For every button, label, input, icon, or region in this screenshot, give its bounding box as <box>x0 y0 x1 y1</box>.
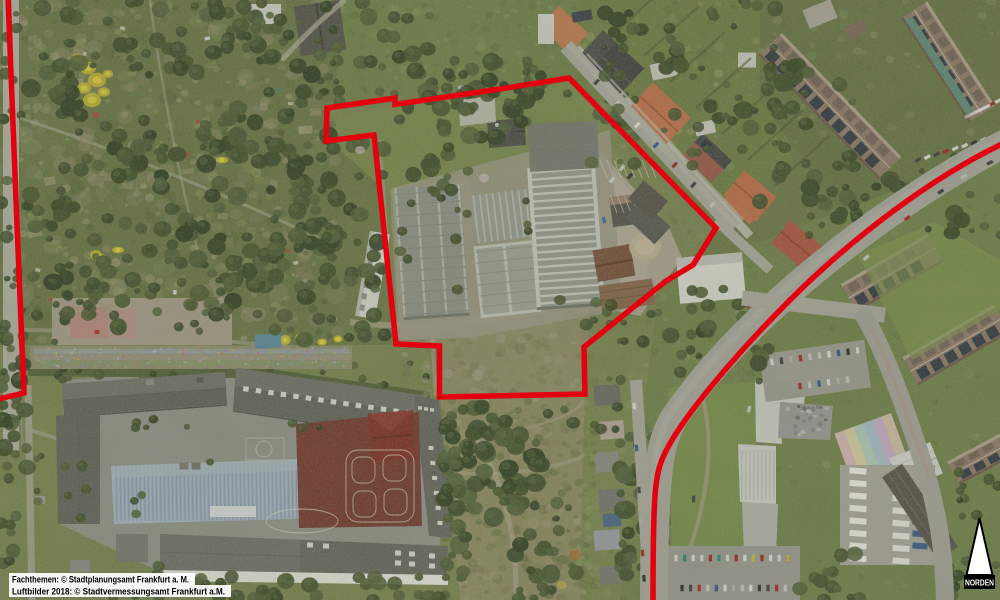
svg-text:NORDEN: NORDEN <box>965 579 994 588</box>
svg-text:Fachthemen: © Stadtplanungsamt: Fachthemen: © Stadtplanungsamt Frankfurt… <box>12 575 189 585</box>
svg-text:Luftbilder 2018: © Stadtvermes: Luftbilder 2018: © Stadtvermessungsamt F… <box>12 587 225 597</box>
